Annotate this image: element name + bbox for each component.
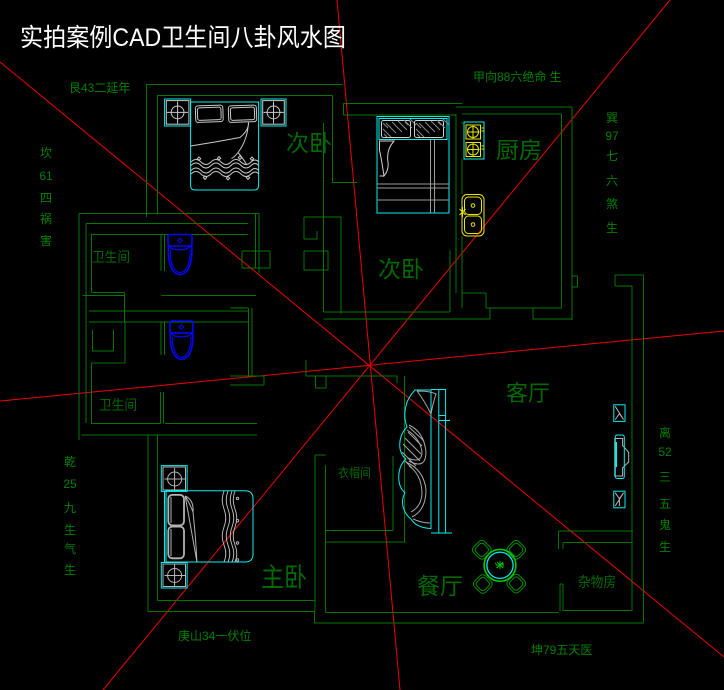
svg-text:衣帽间: 衣帽间 bbox=[338, 465, 371, 480]
svg-text:厨房: 厨房 bbox=[496, 137, 542, 163]
svg-text:九: 九 bbox=[64, 501, 76, 515]
svg-text:气: 气 bbox=[64, 541, 76, 556]
svg-text:庚山34一伏位: 庚山34一伏位 bbox=[178, 628, 251, 643]
svg-text:乾: 乾 bbox=[64, 455, 76, 469]
svg-text:五: 五 bbox=[659, 497, 671, 511]
svg-text:艮43二延年: 艮43二延年 bbox=[69, 81, 130, 95]
svg-text:主卧: 主卧 bbox=[261, 563, 307, 593]
svg-text:97: 97 bbox=[605, 129, 619, 143]
svg-text:四: 四 bbox=[40, 191, 52, 205]
svg-text:52: 52 bbox=[658, 445, 672, 459]
svg-text:客厅: 客厅 bbox=[506, 381, 550, 406]
svg-text:甲向88六绝命 生: 甲向88六绝命 生 bbox=[473, 69, 562, 84]
svg-text:鬼: 鬼 bbox=[659, 517, 671, 532]
svg-text:煞: 煞 bbox=[606, 197, 618, 211]
svg-text:三: 三 bbox=[659, 470, 671, 484]
svg-text:25: 25 bbox=[63, 477, 77, 491]
svg-text:卫生间: 卫生间 bbox=[99, 397, 137, 413]
svg-text:61: 61 bbox=[39, 169, 53, 183]
svg-text:餐厅: 餐厅 bbox=[417, 573, 463, 599]
svg-text:坎: 坎 bbox=[40, 146, 52, 160]
svg-text:巽: 巽 bbox=[606, 111, 618, 125]
svg-text:杂物房: 杂物房 bbox=[578, 574, 616, 590]
svg-text:离: 离 bbox=[659, 425, 671, 440]
svg-text:六: 六 bbox=[606, 174, 618, 188]
svg-text:卫生间: 卫生间 bbox=[92, 249, 130, 265]
svg-text:次卧: 次卧 bbox=[378, 256, 424, 282]
svg-text:次卧: 次卧 bbox=[286, 130, 332, 156]
svg-text:害: 害 bbox=[40, 233, 52, 248]
svg-text:生: 生 bbox=[659, 540, 671, 554]
svg-text:生: 生 bbox=[606, 221, 618, 235]
svg-text:实拍案例CAD卫生间八卦风水图: 实拍案例CAD卫生间八卦风水图 bbox=[20, 24, 346, 52]
svg-text:生: 生 bbox=[64, 523, 76, 537]
svg-text:祸: 祸 bbox=[40, 211, 52, 226]
svg-text:坤79五天医: 坤79五天医 bbox=[531, 642, 592, 657]
svg-text:生: 生 bbox=[64, 563, 76, 577]
svg-text:七: 七 bbox=[606, 149, 618, 163]
